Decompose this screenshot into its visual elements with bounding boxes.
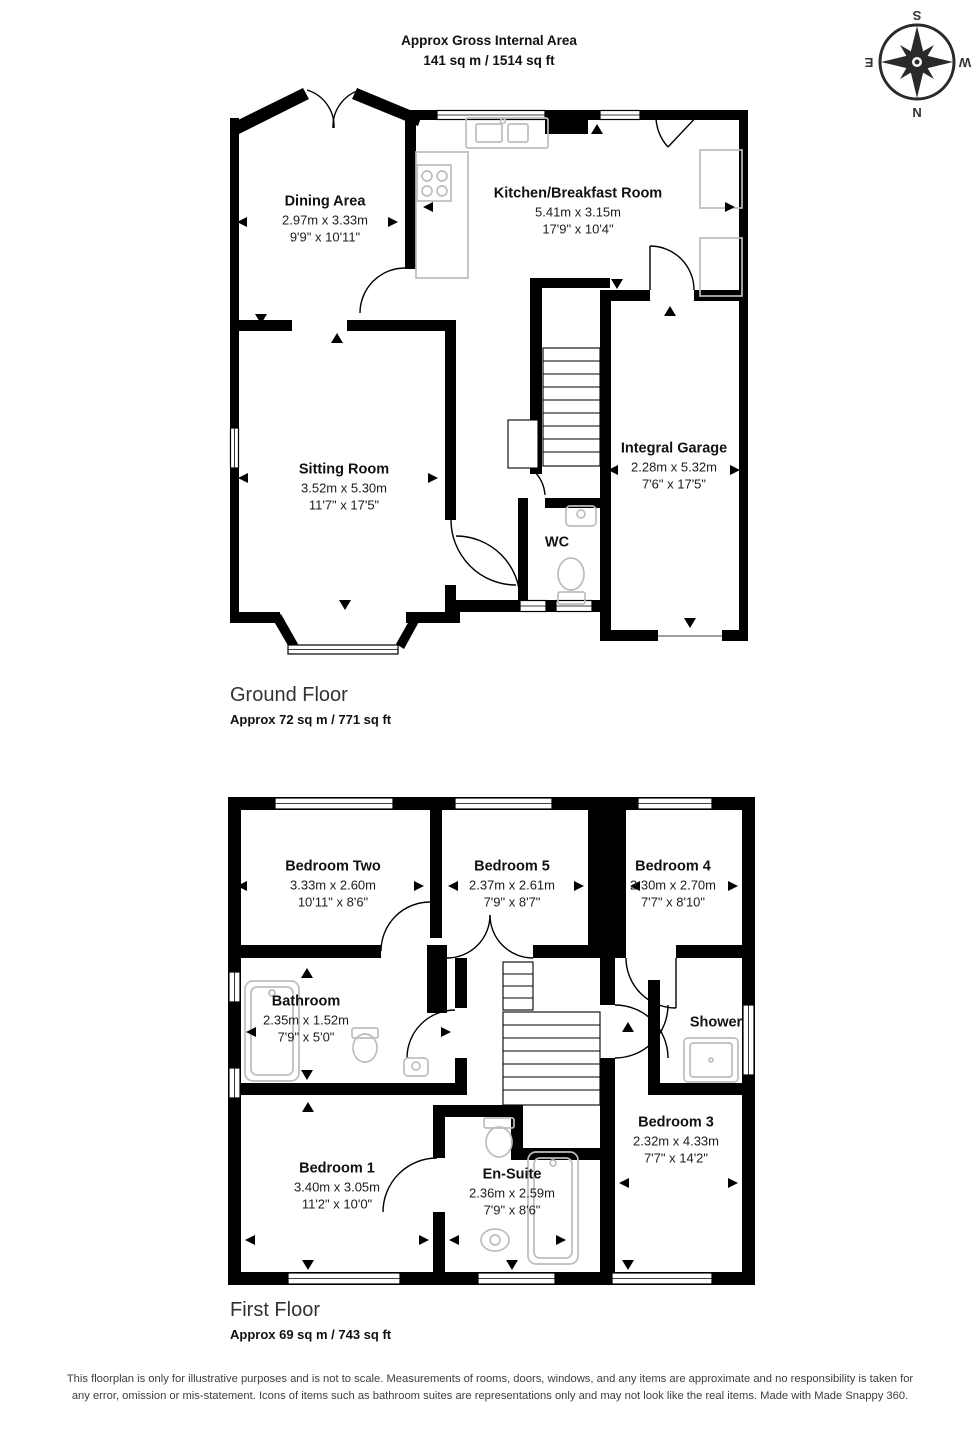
room-dim-imperial: 7'9" x 8'6" — [469, 1202, 555, 1219]
room-label-sitting-room: Sitting Room 3.52m x 5.30m 11'7" x 17'5" — [299, 460, 389, 513]
room-dim-imperial: 7'6" x 17'5" — [621, 476, 727, 493]
first-floor-area: Approx 69 sq m / 743 sq ft — [230, 1327, 391, 1342]
room-dim-metric: 2.37m x 2.61m — [469, 876, 555, 893]
ground-floor-plan — [230, 88, 748, 654]
room-label-dining-area: Dining Area 2.97m x 3.33m 9'9" x 10'11" — [282, 192, 368, 245]
room-dim-imperial: 7'7" x 8'10" — [630, 894, 716, 911]
floorplan-page: S N E W Approx Gross Internal Area 141 s… — [0, 0, 980, 1436]
room-label-integral-garage: Integral Garage 2.28m x 5.32m 7'6" x 17'… — [621, 439, 727, 492]
room-dim-imperial: 7'7" x 14'2" — [633, 1150, 719, 1167]
room-name: Bedroom 4 — [630, 857, 716, 876]
room-dim-metric: 3.33m x 2.60m — [285, 876, 381, 893]
gross-internal-area-header: Approx Gross Internal Area 141 sq m / 15… — [401, 31, 577, 72]
room-label-bedroom-5: Bedroom 5 2.37m x 2.61m 7'9" x 8'7" — [469, 857, 555, 910]
room-name: Bedroom Two — [285, 857, 381, 876]
room-dim-metric: 3.52m x 5.30m — [299, 479, 389, 496]
room-dim-imperial: 11'2" x 10'0" — [294, 1196, 380, 1213]
header-line2: 141 sq m / 1514 sq ft — [401, 51, 577, 71]
room-dim-imperial: 9'9" x 10'11" — [282, 229, 368, 246]
compass-icon: S N E W — [864, 8, 971, 120]
room-dim-imperial: 7'9" x 8'7" — [469, 894, 555, 911]
first-floor-title: First Floor — [230, 1299, 320, 1322]
room-name: Shower — [690, 1013, 742, 1032]
room-name: Dining Area — [282, 192, 368, 211]
room-dim-imperial: 17'9" x 10'4" — [494, 221, 662, 238]
room-label-bedroom-4: Bedroom 4 2.30m x 2.70m 7'7" x 8'10" — [630, 857, 716, 910]
compass-left-label: E — [864, 55, 873, 70]
compass-bottom-label: N — [912, 105, 921, 120]
room-dim-metric: 2.30m x 2.70m — [630, 876, 716, 893]
ground-floor-area: Approx 72 sq m / 771 sq ft — [230, 712, 391, 727]
room-dim-metric: 2.28m x 5.32m — [621, 458, 727, 475]
room-name: Kitchen/Breakfast Room — [494, 184, 662, 203]
floorplan-drawing: S N E W — [0, 0, 980, 1436]
room-name: En-Suite — [469, 1165, 555, 1184]
room-label-bathroom: Bathroom 2.35m x 1.52m 7'9" x 5'0" — [263, 992, 349, 1045]
room-dim-metric: 2.32m x 4.33m — [633, 1132, 719, 1149]
room-name: Bathroom — [263, 992, 349, 1011]
room-label-en-suite: En-Suite 2.36m x 2.59m 7'9" x 8'6" — [469, 1165, 555, 1218]
room-dim-metric: 2.36m x 2.59m — [469, 1184, 555, 1201]
room-name: WC — [545, 533, 569, 552]
room-name: Integral Garage — [621, 439, 727, 458]
room-name: Bedroom 1 — [294, 1159, 380, 1178]
compass-right-label: W — [958, 55, 971, 70]
room-dim-metric: 2.97m x 3.33m — [282, 211, 368, 228]
room-label-bedroom-two: Bedroom Two 3.33m x 2.60m 10'11" x 8'6" — [285, 857, 381, 910]
ground-floor-title: Ground Floor — [230, 684, 348, 707]
room-dim-metric: 2.35m x 1.52m — [263, 1011, 349, 1028]
header-line1: Approx Gross Internal Area — [401, 31, 577, 51]
room-dim-metric: 3.40m x 3.05m — [294, 1178, 380, 1195]
room-label-bedroom-1: Bedroom 1 3.40m x 3.05m 11'2" x 10'0" — [294, 1159, 380, 1212]
compass-top-label: S — [912, 8, 921, 23]
room-dim-imperial: 7'9" x 5'0" — [263, 1029, 349, 1046]
room-label-bedroom-3: Bedroom 3 2.32m x 4.33m 7'7" x 14'2" — [633, 1113, 719, 1166]
disclaimer-text: This floorplan is only for illustrative … — [64, 1371, 916, 1405]
room-dim-metric: 5.41m x 3.15m — [494, 203, 662, 220]
room-name: Bedroom 5 — [469, 857, 555, 876]
room-dim-imperial: 10'11" x 8'6" — [285, 894, 381, 911]
room-name: Bedroom 3 — [633, 1113, 719, 1132]
room-dim-imperial: 11'7" x 17'5" — [299, 497, 389, 514]
room-label-wc: WC — [545, 533, 569, 552]
room-label-kitchen: Kitchen/Breakfast Room 5.41m x 3.15m 17'… — [494, 184, 662, 237]
room-name: Sitting Room — [299, 460, 389, 479]
room-label-shower: Shower — [690, 1013, 742, 1032]
